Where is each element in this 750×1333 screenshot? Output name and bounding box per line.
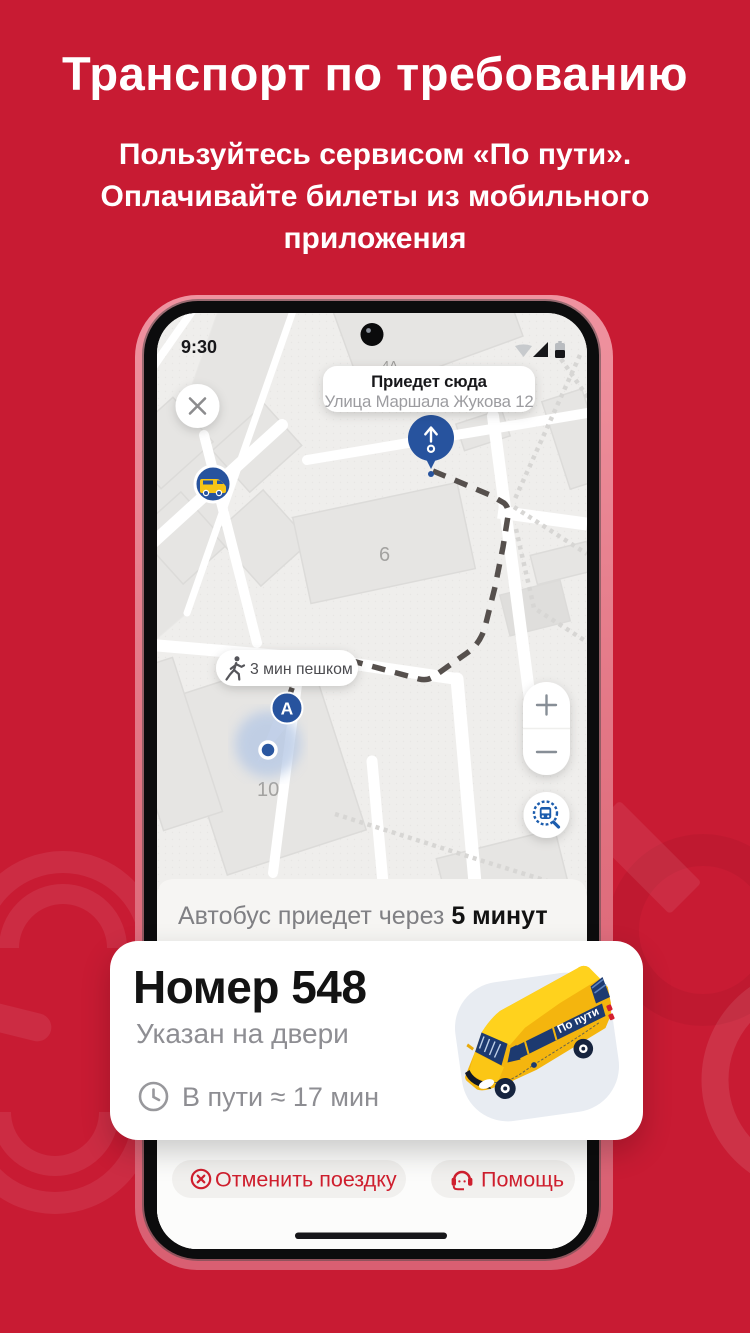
svg-text:Помощь: Помощь (481, 1168, 564, 1192)
svg-text:Улица Маршала Жукова 12: Улица Маршала Жукова 12 (324, 392, 533, 411)
svg-text:Автобус приедет через 5 минут: Автобус приедет через 5 минут (178, 902, 548, 930)
svg-text:Приедет сюда: Приедет сюда (371, 372, 488, 391)
svg-text:10: 10 (257, 779, 279, 801)
svg-text:Отменить поездку: Отменить поездку (215, 1168, 397, 1192)
svg-text:9:30: 9:30 (181, 337, 217, 357)
svg-text:A: A (281, 699, 294, 719)
svg-text:6: 6 (379, 544, 390, 566)
svg-text:3 мин пешком: 3 мин пешком (250, 661, 353, 678)
